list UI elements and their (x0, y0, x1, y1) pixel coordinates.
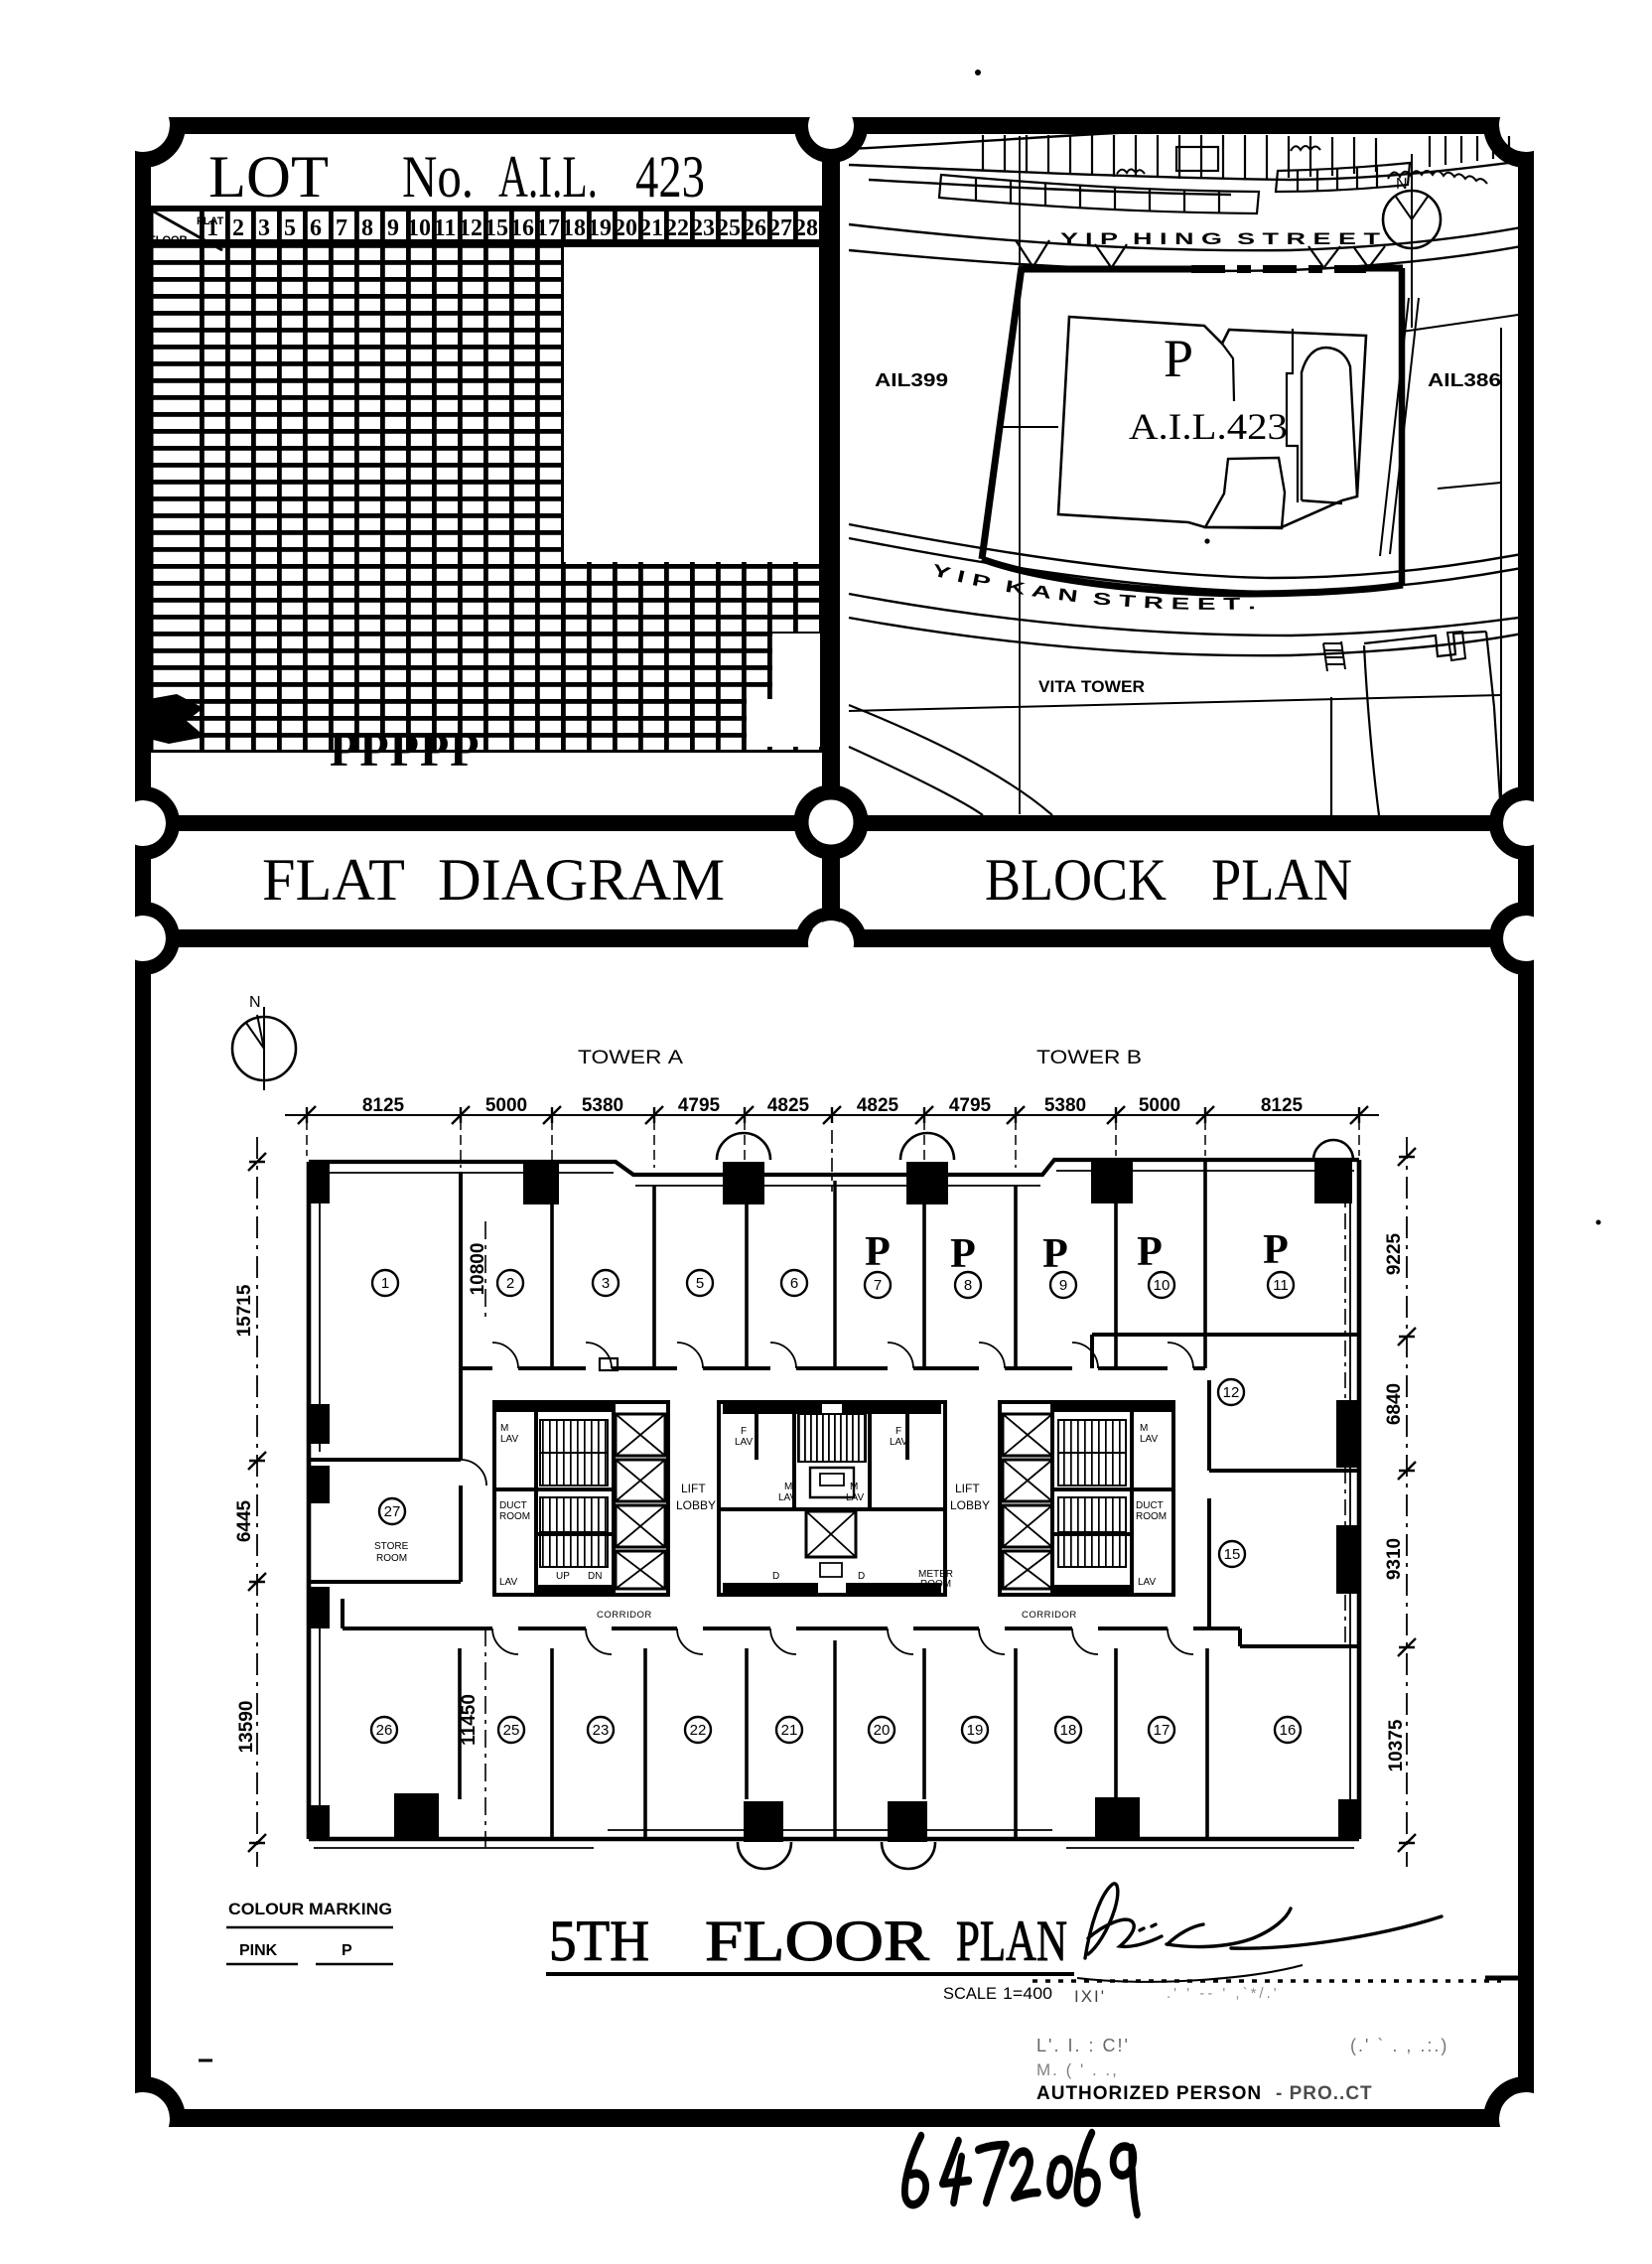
svg-text:5000: 5000 (1139, 1095, 1180, 1116)
svg-text:LAV: LAV (890, 1437, 907, 1448)
svg-text:10375: 10375 (1386, 1719, 1407, 1771)
svg-text:TOWER B: TOWER B (1036, 1048, 1142, 1068)
svg-text:P: P (1263, 1227, 1289, 1273)
svg-text:A.I.L.423: A.I.L.423 (1129, 407, 1288, 448)
svg-text:DN: DN (588, 1571, 602, 1582)
svg-text:ROOM: ROOM (376, 1553, 407, 1564)
svg-text:8125: 8125 (1261, 1095, 1304, 1116)
svg-text:CORRIDOR: CORRIDOR (597, 1610, 652, 1621)
svg-text:D: D (858, 1571, 865, 1582)
svg-text:PLAN: PLAN (1211, 847, 1352, 913)
svg-text:No.: No. (402, 144, 474, 210)
svg-text:F: F (741, 1426, 747, 1437)
svg-text:10: 10 (1154, 1277, 1170, 1294)
svg-text:27: 27 (768, 215, 792, 241)
svg-text:SCALE: SCALE (943, 1984, 997, 2003)
svg-text:LAV: LAV (499, 1577, 517, 1588)
svg-text:FLAT: FLAT (262, 847, 405, 913)
svg-text:4825: 4825 (857, 1095, 899, 1116)
svg-text:15715: 15715 (234, 1284, 255, 1337)
svg-text:TOWER A: TOWER A (578, 1048, 683, 1068)
svg-text:10: 10 (407, 215, 431, 241)
svg-text:2: 2 (232, 215, 244, 241)
svg-text:LAV: LAV (766, 1582, 784, 1593)
svg-text:FLOOR: FLOOR (149, 234, 188, 246)
svg-text:3: 3 (258, 215, 270, 241)
svg-text:6: 6 (310, 215, 322, 241)
svg-text:5380: 5380 (582, 1095, 623, 1116)
svg-text:COLOUR MARKING: COLOUR MARKING (228, 1900, 392, 1918)
svg-text:L'. I. : C!': L'. I. : C!' (1036, 2036, 1130, 2055)
svg-text:LIFT: LIFT (681, 1482, 706, 1495)
svg-text:5: 5 (696, 1275, 704, 1292)
svg-text:12: 12 (459, 215, 482, 241)
svg-text:18: 18 (562, 215, 586, 241)
svg-text:9225: 9225 (1384, 1232, 1405, 1275)
svg-text:1=400: 1=400 (1003, 1984, 1052, 2003)
svg-text:PINK: PINK (239, 1942, 278, 1959)
svg-text:5000: 5000 (485, 1095, 527, 1116)
svg-text:LAV: LAV (854, 1582, 872, 1593)
svg-text:- PRO..CT: - PRO..CT (1276, 2083, 1373, 2104)
svg-text:15: 15 (484, 215, 508, 241)
svg-text:20: 20 (614, 215, 637, 241)
svg-text:6: 6 (790, 1275, 798, 1292)
svg-text:6445: 6445 (234, 1499, 255, 1542)
svg-text:FLOOR: FLOOR (705, 1909, 929, 1973)
svg-text:ROOM: ROOM (920, 1579, 951, 1590)
svg-text:11: 11 (1273, 1277, 1289, 1294)
svg-text:9: 9 (387, 215, 399, 241)
svg-text:11450: 11450 (459, 1694, 480, 1746)
svg-text:F: F (895, 1426, 901, 1437)
svg-text:LAV: LAV (778, 1492, 796, 1503)
svg-text:P: P (1164, 329, 1193, 388)
svg-text:Y I P H I N G S T R E E T: Y I P H I N G S T R E E T (1060, 229, 1381, 248)
svg-text:6840: 6840 (1384, 1383, 1405, 1425)
svg-text:1: 1 (206, 215, 218, 241)
svg-text:5: 5 (284, 215, 296, 241)
svg-text:LAV: LAV (735, 1437, 753, 1448)
svg-text:P: P (1137, 1229, 1163, 1275)
svg-text:LOBBY: LOBBY (950, 1498, 990, 1512)
svg-text:IXI': IXI' (1074, 1987, 1106, 2006)
svg-text:5TH: 5TH (549, 1909, 649, 1973)
svg-text:1: 1 (381, 1275, 389, 1292)
svg-text:D: D (772, 1571, 779, 1582)
svg-text:16: 16 (510, 215, 534, 241)
svg-text:20: 20 (874, 1722, 891, 1739)
svg-text:DIAGRAM: DIAGRAM (438, 847, 725, 913)
svg-text:11: 11 (434, 215, 457, 241)
svg-text:LOT: LOT (208, 144, 329, 210)
svg-text:16: 16 (1280, 1722, 1297, 1739)
svg-text:26: 26 (376, 1722, 393, 1739)
svg-text:P: P (865, 1229, 891, 1275)
svg-text:PLAN: PLAN (956, 1909, 1067, 1973)
svg-text:19: 19 (967, 1722, 984, 1739)
svg-text:M. ( ' . .,: M. ( ' . ., (1036, 2060, 1119, 2079)
svg-text:ROOM: ROOM (1136, 1511, 1167, 1522)
svg-text:23: 23 (691, 215, 715, 241)
svg-text:21: 21 (639, 215, 663, 241)
svg-text:N: N (1396, 176, 1408, 193)
svg-text:26: 26 (743, 215, 766, 241)
svg-text:M: M (1140, 1423, 1148, 1434)
svg-text:7: 7 (336, 215, 347, 241)
svg-text:LAV: LAV (1138, 1577, 1156, 1588)
svg-text:423: 423 (635, 144, 705, 210)
svg-text:22: 22 (665, 215, 689, 241)
svg-text:UP: UP (556, 1571, 570, 1582)
svg-text:3: 3 (602, 1275, 610, 1292)
svg-text:DUCT: DUCT (1136, 1500, 1164, 1511)
svg-text:AIL386: AIL386 (1428, 370, 1501, 390)
svg-text:LAV: LAV (500, 1434, 518, 1445)
svg-text:LOBBY: LOBBY (676, 1498, 716, 1512)
svg-text:LIFT: LIFT (955, 1482, 980, 1495)
svg-text:25: 25 (503, 1722, 520, 1739)
svg-text:AUTHORIZED PERSON: AUTHORIZED PERSON (1036, 2083, 1262, 2104)
svg-text:AIL399: AIL399 (875, 370, 948, 390)
svg-text:23: 23 (593, 1722, 610, 1739)
svg-text:A.I.L.: A.I.L. (498, 144, 598, 210)
svg-text:LAV: LAV (846, 1492, 864, 1503)
svg-text:7: 7 (874, 1277, 882, 1294)
svg-text:8: 8 (361, 215, 373, 241)
svg-text:P: P (342, 1942, 352, 1959)
svg-text:(.' ` . , .:.): (.' ` . , .:.) (1350, 2036, 1448, 2055)
svg-text:ROOM: ROOM (499, 1511, 530, 1522)
svg-text:P: P (950, 1231, 976, 1277)
svg-text:BLOCK: BLOCK (985, 847, 1167, 913)
svg-text:17: 17 (536, 215, 560, 241)
svg-text:21: 21 (781, 1722, 798, 1739)
svg-text:22: 22 (690, 1722, 707, 1739)
svg-text:19: 19 (588, 215, 612, 241)
svg-text:4795: 4795 (949, 1095, 992, 1116)
svg-text:28: 28 (794, 215, 818, 241)
svg-text:4825: 4825 (767, 1095, 810, 1116)
svg-text:2: 2 (506, 1275, 514, 1292)
svg-text:17: 17 (1154, 1722, 1170, 1739)
svg-text:27: 27 (384, 1503, 401, 1520)
svg-text:18: 18 (1060, 1722, 1077, 1739)
svg-text:LAV: LAV (1140, 1434, 1158, 1445)
svg-text:9310: 9310 (1384, 1538, 1405, 1580)
svg-text:M: M (850, 1482, 858, 1492)
svg-text:DUCT: DUCT (499, 1500, 527, 1511)
svg-text:.' ' -- ' ,`*/.': .' ' -- ' ,`*/.' (1167, 1985, 1280, 2002)
svg-text:9: 9 (1059, 1277, 1067, 1294)
svg-text:M: M (784, 1482, 792, 1492)
svg-text:13590: 13590 (236, 1701, 257, 1754)
svg-text:4795: 4795 (678, 1095, 721, 1116)
svg-text:15: 15 (1224, 1546, 1241, 1563)
svg-text:PPPPP: PPPPP (330, 724, 481, 777)
svg-text:12: 12 (1223, 1384, 1240, 1401)
svg-text:8: 8 (964, 1277, 972, 1294)
svg-text:P: P (1042, 1231, 1068, 1277)
svg-text:M: M (500, 1423, 508, 1434)
svg-text:STORE: STORE (374, 1541, 409, 1552)
svg-text:N: N (249, 994, 261, 1011)
svg-text:25: 25 (717, 215, 741, 241)
svg-text:VITA TOWER: VITA TOWER (1038, 677, 1145, 696)
svg-text:CORRIDOR: CORRIDOR (1022, 1610, 1077, 1621)
svg-text:8125: 8125 (362, 1095, 405, 1116)
svg-text:5380: 5380 (1044, 1095, 1086, 1116)
